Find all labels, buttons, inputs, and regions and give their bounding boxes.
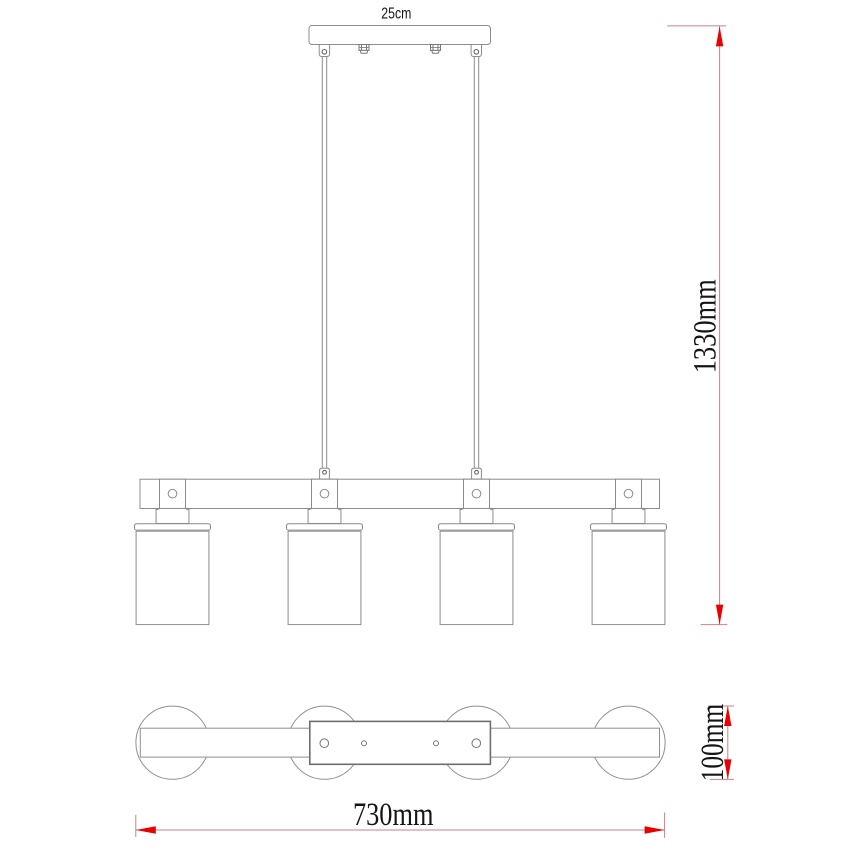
svg-text:25cm: 25cm [381,6,411,23]
svg-text:100mm: 100mm [695,704,731,782]
svg-text:1330mm: 1330mm [688,279,724,373]
svg-text:730mm: 730mm [353,797,434,833]
